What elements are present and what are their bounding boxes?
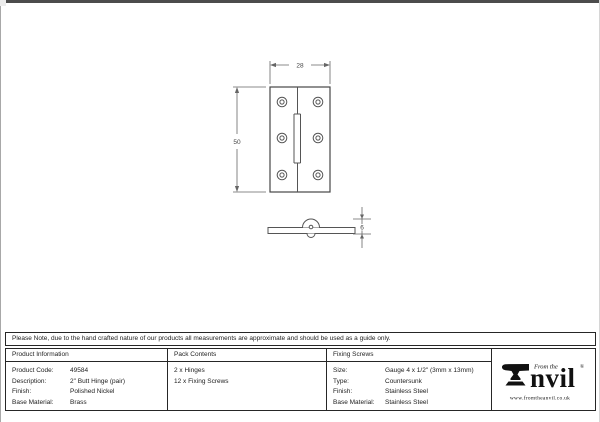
anvil-icon-base: [505, 381, 525, 385]
spec-row-screw-finish: Finish: Stainless Steel: [333, 387, 487, 398]
anvil-logo-graphic: From the nvil ® www.fromtheanvil.co.uk: [500, 357, 588, 403]
spec-row-finish: Finish: Polished Nickel: [12, 387, 163, 398]
pack-contents-header: Pack Contents: [168, 349, 326, 362]
anvil-icon: [501, 364, 528, 380]
height-dimension: 50: [233, 87, 266, 192]
product-information-header: Product Information: [6, 349, 167, 362]
spec-row-product-code: Product Code: 49584: [12, 366, 163, 377]
fixing-screws-header: Fixing Screws: [327, 349, 491, 362]
spec-table: Product Information Product Code: 49584 …: [5, 348, 596, 411]
spec-label: Base Material:: [12, 398, 70, 409]
pack-contents-item: 2 x Hinges: [174, 366, 322, 377]
pack-contents-item: 12 x Fixing Screws: [174, 377, 322, 388]
spec-label: Product Code:: [12, 366, 70, 377]
measurement-note: Please Note, due to the hand crafted nat…: [5, 332, 596, 346]
thickness-dimension-label: 6: [360, 225, 364, 232]
spec-row-base-material: Base Material: Brass: [12, 398, 163, 409]
fixing-screws-body: Size: Gauge 4 x 1/2" (3mm x 13mm) Type: …: [327, 362, 491, 408]
hinge-technical-drawing: 28 50 6: [0, 0, 600, 330]
product-information-body: Product Code: 49584 Description: 2" Butt…: [6, 362, 167, 408]
logo-brand-text: nvil: [530, 363, 576, 393]
spec-row-screw-base-material: Base Material: Stainless Steel: [333, 398, 487, 409]
spec-value: Stainless Steel: [385, 387, 428, 398]
thickness-dimension: 6: [353, 207, 371, 248]
pack-contents-column: Pack Contents 2 x Hinges 12 x Fixing Scr…: [168, 349, 327, 410]
spec-value: 49584: [70, 366, 88, 377]
spec-value: Gauge 4 x 1/2" (3mm x 13mm): [385, 366, 474, 377]
width-dimension: 28: [270, 61, 330, 84]
pack-contents-body: 2 x Hinges 12 x Fixing Screws: [168, 362, 326, 387]
brand-column: From the nvil ® www.fromtheanvil.co.uk: [492, 349, 595, 410]
spec-value: Stainless Steel: [385, 398, 428, 409]
spec-label: Finish:: [12, 387, 70, 398]
logo-website-url: www.fromtheanvil.co.uk: [509, 394, 569, 401]
fixing-screws-column: Fixing Screws Size: Gauge 4 x 1/2" (3mm …: [327, 349, 492, 410]
registered-trademark-symbol: ®: [580, 363, 584, 370]
spec-label: Size:: [333, 366, 385, 377]
spec-value: Brass: [70, 398, 87, 409]
height-dimension-label: 50: [233, 139, 241, 146]
spec-label: Description:: [12, 377, 70, 388]
spec-row-description: Description: 2" Butt Hinge (pair): [12, 377, 163, 388]
spec-row-type: Type: Countersunk: [333, 377, 487, 388]
spec-value: Countersunk: [385, 377, 422, 388]
hinge-side-view: [268, 219, 355, 238]
spec-row-size: Size: Gauge 4 x 1/2" (3mm x 13mm): [333, 366, 487, 377]
spec-value: 2" Butt Hinge (pair): [70, 377, 125, 388]
width-dimension-label: 28: [296, 62, 304, 69]
spec-label: Type:: [333, 377, 385, 388]
hinge-knuckle-underside: [307, 234, 315, 238]
hinge-front-view: [270, 87, 330, 192]
spec-label: Finish:: [333, 387, 385, 398]
hinge-pin: [309, 225, 313, 229]
anvil-logo: From the nvil ® www.fromtheanvil.co.uk: [500, 349, 588, 410]
product-information-column: Product Information Product Code: 49584 …: [6, 349, 168, 410]
spec-value: Polished Nickel: [70, 387, 114, 398]
spec-label: Base Material:: [333, 398, 385, 409]
